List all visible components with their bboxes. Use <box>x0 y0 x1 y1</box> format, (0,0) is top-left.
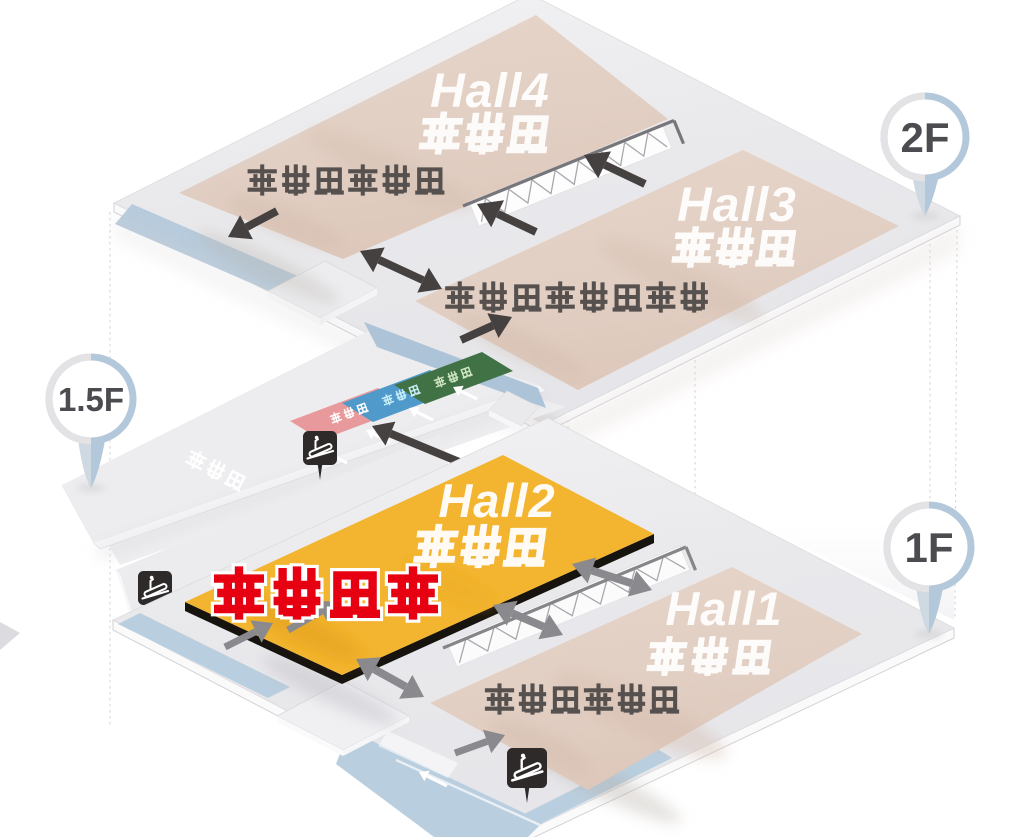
svg-text:1F: 1F <box>904 524 953 571</box>
svg-text:Hall3: Hall3 <box>677 179 797 232</box>
svg-text:Hall4: Hall4 <box>430 65 550 118</box>
svg-text:2F: 2F <box>900 114 949 161</box>
svg-text:Hall2: Hall2 <box>438 474 555 527</box>
svg-text:1.5F: 1.5F <box>58 381 124 418</box>
svg-text:Hall1: Hall1 <box>665 582 782 635</box>
